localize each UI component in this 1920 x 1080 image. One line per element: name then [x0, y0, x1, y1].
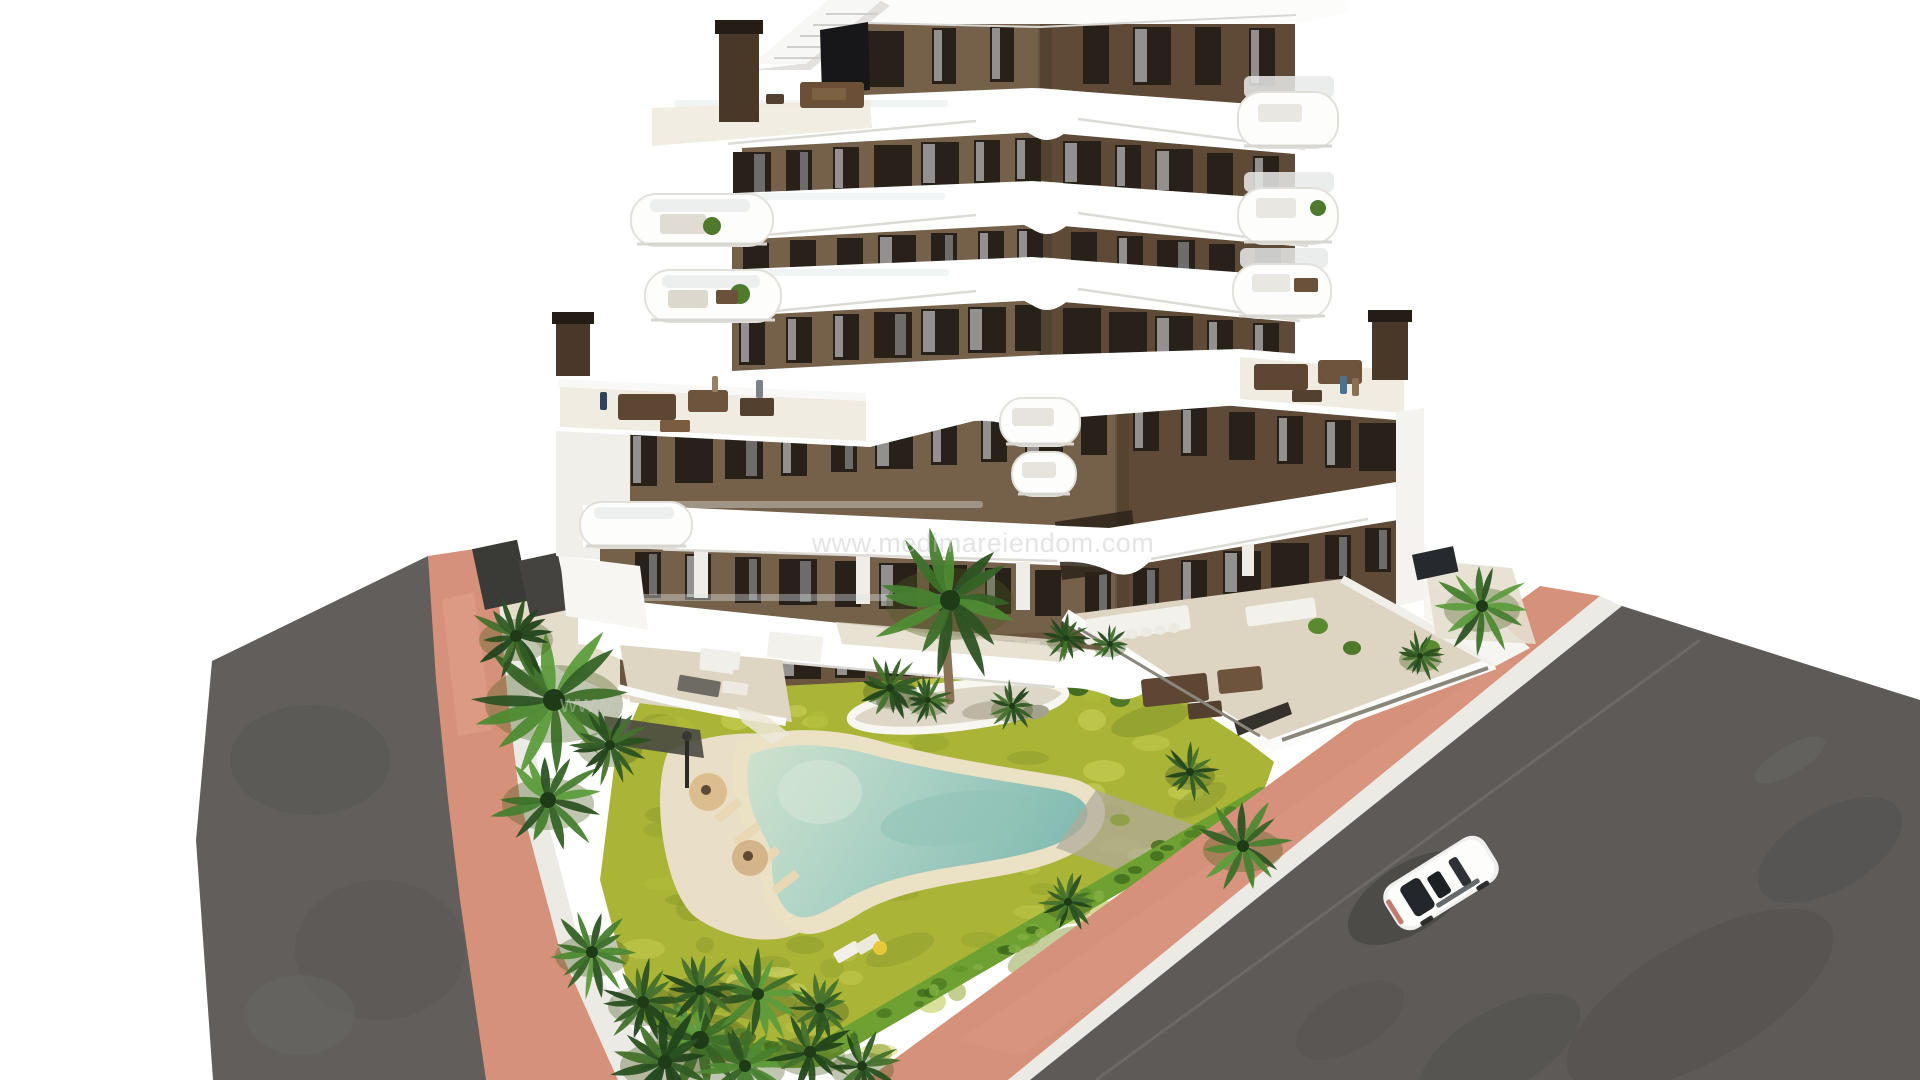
- svg-text:www.medimareiendom.com: www.medimareiendom.com: [811, 528, 1155, 558]
- svg-text:www.: www.: [559, 691, 617, 718]
